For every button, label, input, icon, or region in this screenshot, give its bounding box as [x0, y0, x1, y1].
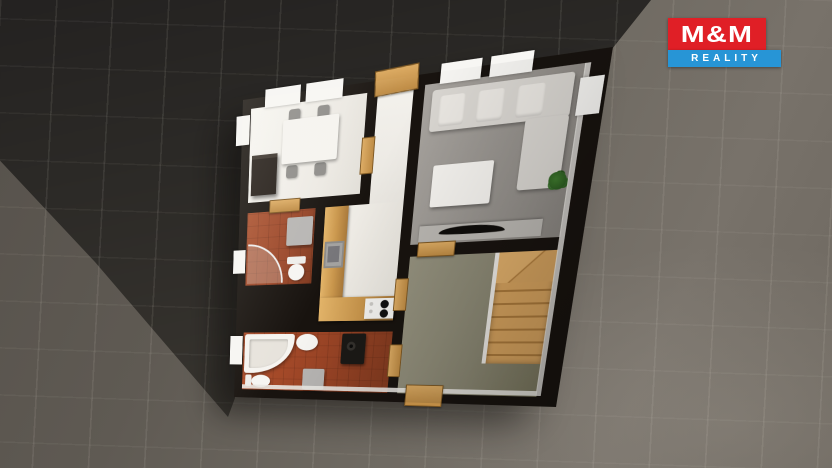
logo-blue-bar: REALITY: [668, 50, 781, 67]
dining-table: [281, 113, 339, 164]
burner-icon: [380, 300, 389, 309]
window: [575, 75, 605, 116]
washer-door-icon: [346, 342, 355, 351]
shower-bathroom: [245, 208, 315, 286]
chair: [286, 165, 298, 179]
burner-icon: [379, 309, 388, 318]
brand-logo: M&M REALITY: [668, 18, 788, 70]
cooktop: [364, 298, 395, 319]
window: [233, 250, 246, 274]
logo-tagline: REALITY: [687, 53, 762, 64]
bathroom-cabinet: [286, 216, 313, 246]
floorplan-building: [234, 47, 613, 407]
dark-cabinet: [251, 153, 278, 196]
living-room: [410, 63, 586, 245]
window: [230, 336, 243, 365]
door-wc: [269, 198, 300, 214]
chair: [314, 162, 326, 176]
dining-room: [248, 93, 367, 203]
stair-winder: [496, 250, 559, 283]
main-bathroom: [242, 332, 393, 393]
knob-icon: [369, 310, 373, 314]
kitchen: [318, 201, 403, 321]
plant: [547, 171, 568, 190]
entrance-door: [404, 384, 444, 407]
door-living-hall: [417, 240, 456, 257]
sink-basin: [327, 246, 340, 263]
sofa-cushion: [475, 88, 505, 123]
logo-red-box: M&M: [668, 18, 766, 50]
screenshot-stage: M&M REALITY: [0, 0, 832, 468]
coffee-table: [429, 160, 494, 208]
kitchen-sink: [323, 241, 344, 269]
knob-icon: [369, 302, 373, 306]
logo-title: M&M: [681, 21, 753, 48]
hallway: [369, 86, 414, 207]
window: [236, 115, 250, 146]
washing-machine: [340, 334, 366, 365]
sofa-cushion: [437, 93, 465, 127]
sofa-cushion: [515, 82, 547, 118]
